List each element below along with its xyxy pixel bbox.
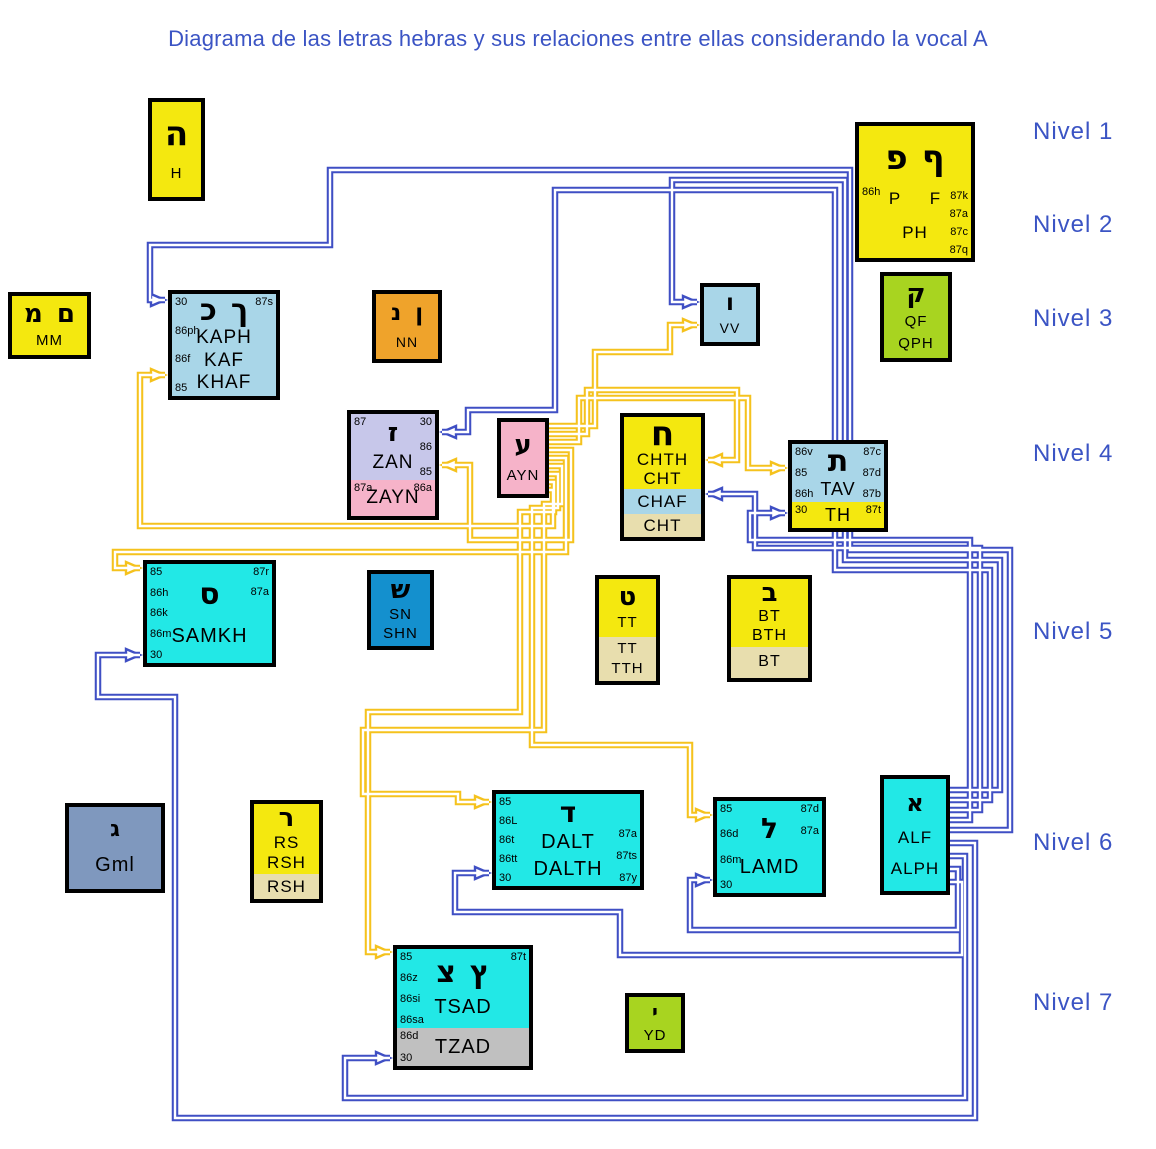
name-label: CHT [644,470,682,488]
yd-box: יYD [625,993,685,1053]
rsh-box: רRSRSHRSH [250,800,323,903]
hebrew-letter: ת [828,448,849,477]
bt-box: בBTBTHBT [727,575,812,682]
hebrew-letters: ע [514,433,531,458]
name-label: DALT [541,832,595,853]
name-label: KAPH [196,328,252,348]
hebrew-letter: מ [24,302,43,327]
code-label: 86t [499,834,514,846]
code-label: 86m [720,854,741,866]
hebrew-letters: ס [199,581,219,610]
alf-band-0: אALFALPH [884,779,946,891]
hebrew-letters: ב [762,581,778,606]
name-label: CHTH [637,451,688,469]
name-label: NN [396,335,418,350]
code-label: 30 [400,1052,412,1064]
name-label: SHN [383,626,418,642]
code-label: 85 [499,796,511,808]
code-label: 86h [795,488,813,500]
name-label: QF [905,314,928,330]
code-label: 87a [354,482,372,494]
code-label: 86f [175,353,190,365]
hebrew-letter: ב [762,581,778,606]
hebrew-letter: ם [57,302,75,327]
ph-band-0: 86h87k87a87c87qפףP FPH [859,126,971,258]
tt-band-1: TTTTH [599,637,656,681]
code-label: 87d [863,467,881,479]
code-label: 87c [950,226,968,238]
name-label: BT [758,609,780,626]
bt-band-0: בBTBTH [731,579,808,647]
rsh-band-1: RSH [254,874,319,899]
nn-band-0: נןNN [376,294,438,359]
dalt-box: 8586L86t86tt3087a87ts87yדDALTDALTH [492,790,644,890]
level-label-7: Nivel 7 [1033,989,1113,1017]
hebrew-letter: ק [906,282,925,307]
ayn-band-0: עAYN [501,422,545,494]
code-label: 86d [720,828,738,840]
code-label: 30 [499,872,511,884]
hebrew-letters: ח [651,418,674,450]
name-label: TTH [611,661,643,677]
hebrew-letters: ו [726,293,734,315]
code-label: 87a [251,586,269,598]
name-label: BTH [752,628,787,645]
hebrew-letter: פ [885,142,907,174]
hebrew-letters: ר [279,806,295,831]
code-label: 87a [801,825,819,837]
code-label: 30 [150,649,162,661]
yd-band-0: יYD [629,997,681,1049]
diagram-canvas: Diagrama de las letras hebras y sus rela… [0,0,1156,1149]
name-label: CHAF [637,493,687,511]
hebrew-letter: כ [200,297,217,326]
samkh-band-0: 8586h86k86m3087r87aסSAMKH [147,564,272,663]
code-label: 86sa [400,1014,424,1026]
name-label: VV [720,321,741,336]
lamd-band-0: 8586d86m3087d87aלLAMD [717,801,822,893]
hebrew-letter: י [652,1003,658,1022]
name-label: CHT [644,517,682,535]
code-label: 86m [150,628,171,640]
hebrew-letter: ר [279,806,295,831]
shn-box: שSNSHN [367,570,434,650]
name-label: RSH [267,854,306,872]
name-label: H [171,166,183,182]
code-label: 86a [414,482,432,494]
hebrew-letter: ו [726,293,734,315]
level-label-4: Nivel 4 [1033,440,1113,468]
code-label: 85 [795,467,807,479]
hebrew-letters: ה [165,118,188,150]
code-label: 86h [862,186,880,198]
hebrew-letters: כך [200,297,248,326]
code-label: 85 [400,951,412,963]
hebrew-letters: י [652,1003,658,1022]
name-label: TSAD [434,997,491,1018]
hebrew-letter: צ [436,959,456,988]
hebrew-letters: ק [906,282,925,307]
name-label: AYN [507,468,540,484]
hebrew-letter: ץ [470,959,490,988]
chth-box: חCHTHCHTCHAFCHT [620,413,705,541]
name-label: TT [617,615,637,631]
name-label: KAF [204,351,244,371]
name-label: RS [274,834,300,852]
code-label: 86k [150,607,168,619]
gml-box: גGml [65,803,165,893]
code-label: 86tt [499,853,517,865]
hebrew-letter: ט [619,585,637,610]
ph-box: 86h87k87a87c87qפףP FPH [855,122,975,262]
hebrew-letter: ה [165,118,188,150]
code-label: 87d [801,803,819,815]
tt-box: טTTTTTTH [595,575,660,685]
code-label: 87t [511,951,526,963]
name-label: ALPH [891,860,939,878]
kaph-band-0: 3086ph86f8587sכךKAPHKAFKHAF [172,294,276,396]
dalt-band-0: 8586L86t86tt3087a87ts87yדDALTDALTH [496,794,640,886]
hebrew-letter: ל [761,816,778,843]
code-label: 87s [255,296,273,308]
code-label: 87r [253,566,269,578]
tsad-box: 8586z86si86sa87tצץTSAD86d30TZAD [393,945,533,1070]
code-label: 85 [175,382,187,394]
zan-band-0: 87308685זZAN [351,414,435,480]
name-label: ZAN [373,453,414,473]
hebrew-letter: ח [651,418,674,450]
zan-box: 87308685זZAN87a86aZAYN [347,410,439,520]
level-label-2: Nivel 2 [1033,211,1113,239]
code-label: 86z [400,972,418,984]
hebrew-letter: נ [391,303,401,325]
hebrew-letters: צץ [436,959,489,988]
hebrew-letter: א [906,792,923,815]
hebrew-letters: ט [619,585,637,610]
hebrew-letters: מם [24,302,75,327]
name-label: TT [617,641,637,657]
name-label: ZAYN [366,488,419,508]
hebrew-letter: ז [388,421,398,446]
tt-band-0: טTT [599,579,656,637]
code-label: 30 [795,504,807,516]
code-label: 30 [175,296,187,308]
hebrew-letter: ן [415,303,423,325]
rsh-band-0: רRSRSH [254,804,319,874]
samkh-box: 8586h86k86m3087r87aסSAMKH [143,560,276,667]
chth-band-1: CHAF [624,489,701,514]
lamd-box: 8586d86m3087d87aלLAMD [713,797,826,897]
page-title: Diagrama de las letras hebras y sus rela… [0,26,1156,52]
zan-band-1: 87a86aZAYN [351,480,435,516]
name-label: PH [902,224,928,242]
code-label: 87a [950,208,968,220]
chth-band-2: CHT [624,514,701,537]
hebrew-letter: ע [514,433,531,458]
h-box: הH [148,98,205,201]
code-label: 86h [150,587,168,599]
hebrew-letters: ש [391,578,411,603]
code-label: 86si [400,993,420,1005]
tav-band-0: 86v8586h87c87d87bתTAV [792,444,884,502]
vv-band-0: וVV [704,287,756,342]
nn-box: נןNN [372,290,442,363]
code-label: 87t [866,504,881,516]
hebrew-letter: ך [231,297,248,326]
kaph-box: 3086ph86f8587sכךKAPHKAFKHAF [168,290,280,400]
hebrew-letters: ד [560,800,576,827]
tav-box: 86v8586h87c87d87bתTAV3087tTH [788,440,888,532]
code-label: 85 [420,466,432,478]
name-label: MM [36,333,63,349]
gml-band-0: גGml [69,807,161,889]
name-label: YD [644,1028,667,1044]
name-label: SAMKH [171,626,247,647]
code-label: 30 [720,879,732,891]
name-label: DALTH [533,859,602,880]
connector-ayn-vv [549,325,697,426]
tsad-band-0: 8586z86si86sa87tצץTSAD [397,949,529,1028]
hebrew-letter: ף [922,142,945,174]
vv-box: וVV [700,283,760,346]
name-label: QPH [898,336,934,352]
name-label: SN [389,607,412,623]
name-label: TH [825,506,851,525]
name-label: TZAD [435,1037,491,1058]
name-label: Gml [95,855,135,876]
hebrew-letters: ז [388,421,398,446]
code-label: 87k [950,190,968,202]
hebrew-letters: ל [761,816,778,843]
code-label: 85 [150,566,162,578]
mm-box: מםMM [8,292,91,359]
chth-band-0: חCHTHCHT [624,417,701,489]
hebrew-letters: ג [110,820,120,841]
hebrew-letter: ג [110,820,120,841]
name-label: ALF [898,829,932,847]
shn-band-0: שSNSHN [371,574,430,646]
h-band-0: הH [152,102,201,197]
code-label: 86L [499,815,517,827]
level-label-5: Nivel 5 [1033,618,1113,646]
hebrew-letters: נן [391,303,423,325]
hebrew-letter: ש [391,578,411,603]
code-label: 86d [400,1030,418,1042]
code-label: 87a [619,828,637,840]
hebrew-letters: ת [828,448,849,477]
code-label: 85 [720,803,732,815]
name-label: P F [889,190,941,208]
name-label: RSH [267,878,306,896]
code-label: 86v [795,446,813,458]
code-label: 86ph [175,325,199,337]
name-label: KHAF [197,373,252,393]
hebrew-letter: ס [199,581,219,610]
code-label: 87 [354,416,366,428]
code-label: 87b [863,488,881,500]
hebrew-letter: ד [560,800,576,827]
level-label-3: Nivel 3 [1033,305,1113,333]
bt-band-1: BT [731,647,808,678]
hebrew-letters: א [906,792,923,815]
tsad-band-1: 86d30TZAD [397,1028,529,1066]
code-label: 30 [420,416,432,428]
qph-box: קQFQPH [880,272,952,362]
tav-band-1: 3087tTH [792,502,884,528]
code-label: 87c [863,446,881,458]
name-label: BT [758,654,780,671]
level-label-1: Nivel 1 [1033,118,1113,146]
hebrew-letters: פף [885,142,944,174]
code-label: 87y [619,872,637,884]
code-label: 86 [420,441,432,453]
qph-band-0: קQFQPH [884,276,948,358]
code-label: 87ts [616,850,637,862]
connector-core-ayn-vv [549,325,697,426]
alf-box: אALFALPH [880,775,950,895]
level-label-6: Nivel 6 [1033,829,1113,857]
mm-band-0: מםMM [12,296,87,355]
ayn-box: עAYN [497,418,549,498]
name-label: TAV [820,480,855,499]
code-label: 87q [950,244,968,256]
name-label: LAMD [740,857,800,878]
